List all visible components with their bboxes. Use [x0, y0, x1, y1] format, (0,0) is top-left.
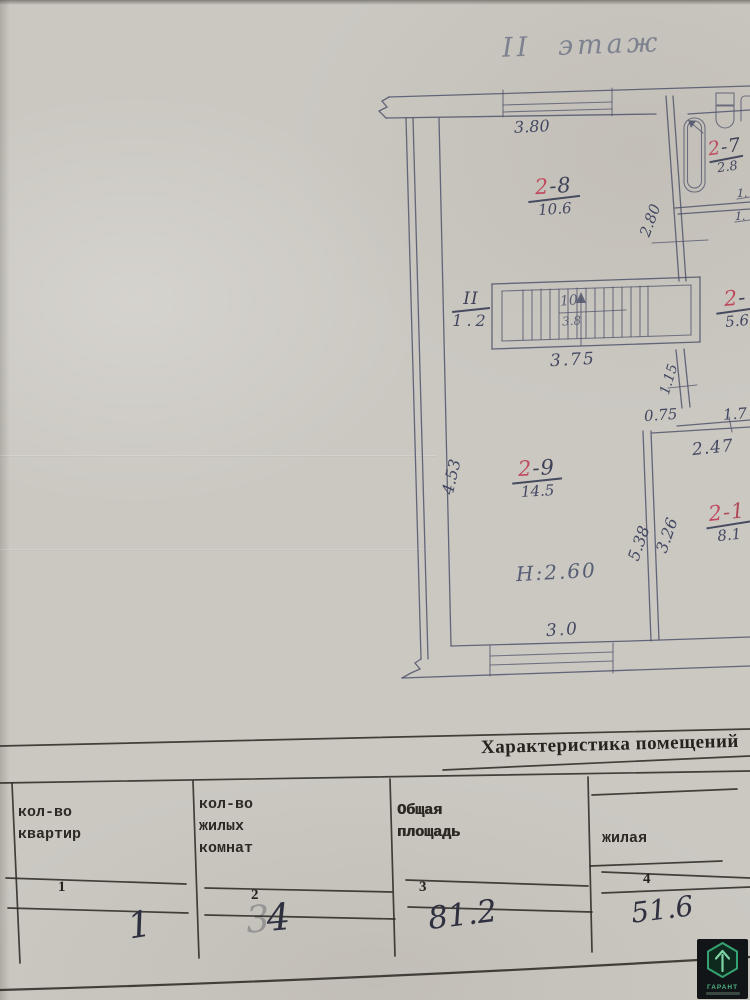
dim-right-cut: 1.7 — [722, 404, 747, 424]
room-number: -1 — [722, 498, 747, 524]
stair-flight-note: 3.8 — [562, 313, 582, 328]
dim-top-width: 3.80 — [514, 116, 551, 137]
room-number: - — [737, 285, 747, 310]
value-faded-digit: 3 — [244, 897, 268, 942]
staircase — [492, 277, 700, 349]
room-label-2-6: 2- 5.6 — [710, 286, 750, 332]
column-number-1: 1 — [58, 879, 66, 896]
watermark-subtext-bar — [706, 992, 740, 995]
header-total-area: Общая площадь — [397, 800, 460, 844]
header-living-area: жилая — [602, 828, 647, 850]
room-label-2-1: 2-1 8.1 — [700, 499, 750, 546]
scanned-floorplan-page: II этаж 3.80 2.80 2-7 2.8 2-8 10.6 1. 1.… — [0, 0, 750, 1000]
agency-watermark: ГАРАНТ — [697, 939, 748, 999]
room-label-2-9: 2-9 14.5 — [505, 456, 569, 501]
corridor-number: II — [463, 289, 478, 309]
floor-title: II этаж — [502, 27, 662, 64]
dim-tick-a: 1. — [737, 187, 748, 200]
value-living-rooms-count: 34 — [244, 895, 289, 941]
dim-stair-length: 3.75 — [550, 349, 597, 371]
room-area: 14.5 — [506, 481, 569, 501]
column-number-4: 4 — [643, 871, 651, 888]
watermark-brand-text: ГАРАНТ — [707, 984, 738, 991]
table-rules — [0, 729, 750, 990]
sink-icon — [741, 96, 750, 121]
garant-logo-hexagon-icon — [697, 939, 748, 983]
stair-corridor-label: II 1.2 — [450, 291, 492, 330]
interior-walls — [643, 96, 750, 641]
room-label-2-7: 2-7 2.8 — [698, 135, 750, 179]
column-number-3: 3 — [419, 879, 427, 896]
room-number: -8 — [548, 173, 572, 199]
room-number: -9 — [532, 455, 556, 480]
dim-bottom-width: 3.0 — [545, 619, 579, 641]
floorplan-drawing — [0, 0, 750, 1000]
header-apartment-count: кол-во квартир — [18, 802, 81, 846]
corridor-area: 1.2 — [450, 312, 492, 330]
room-number: 2 — [534, 174, 550, 199]
dim-door-b: 0.75 — [643, 405, 678, 425]
room-label-2-8: 2-8 10.6 — [523, 174, 586, 220]
toilet-icon — [716, 93, 734, 128]
ceiling-height-note: Н:2.60 — [515, 558, 597, 586]
dim-tick-b: 1. — [735, 210, 746, 223]
room-number: 2 — [517, 456, 533, 481]
stair-flight-mark: 10 — [559, 292, 578, 309]
header-living-rooms-count: кол-во жилых комнат — [199, 794, 253, 859]
